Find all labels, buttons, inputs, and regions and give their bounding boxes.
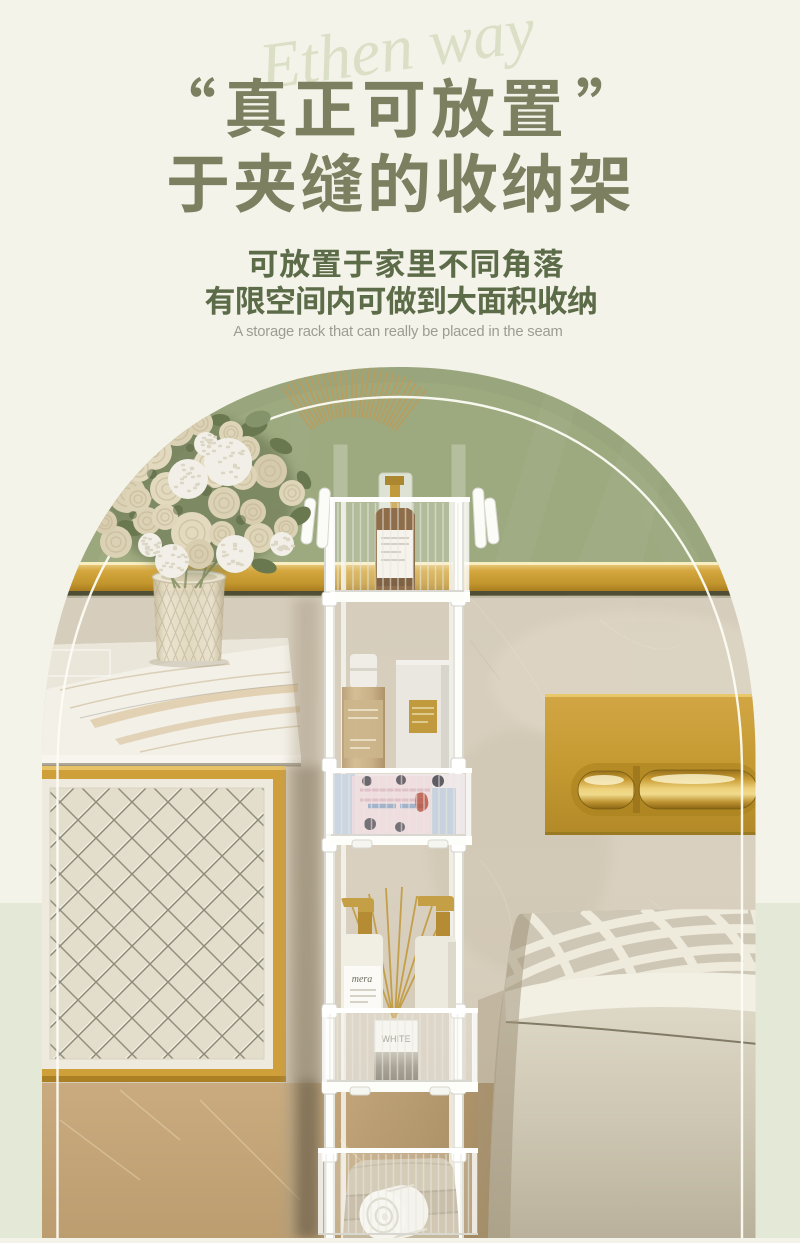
svg-text:A storage rack that can really: A storage rack that can really be placed… [233,324,562,340]
svg-text:mera: mera [352,974,373,985]
svg-text:WHITE: WHITE [382,1034,411,1044]
